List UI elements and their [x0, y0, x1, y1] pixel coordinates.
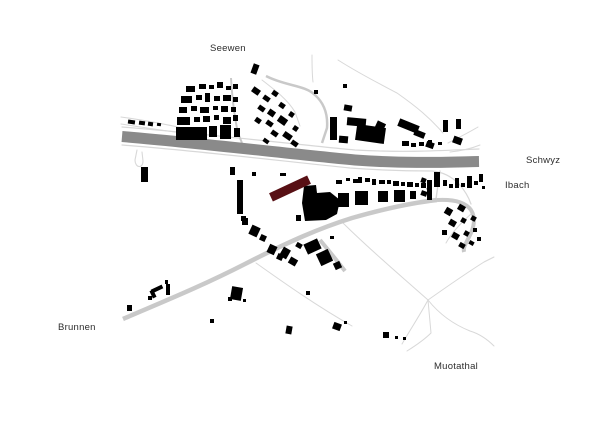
main-roads-layer [123, 76, 474, 319]
site-plan-page: Seewen Schwyz Ibach Brunnen Muotathal [0, 0, 600, 424]
site-plan-map [0, 0, 600, 424]
label-muotathal: Muotathal [434, 362, 478, 372]
label-schwyz: Schwyz [526, 156, 560, 166]
label-brunnen: Brunnen [58, 323, 96, 333]
label-ibach: Ibach [505, 181, 530, 191]
label-seewen: Seewen [210, 44, 246, 54]
